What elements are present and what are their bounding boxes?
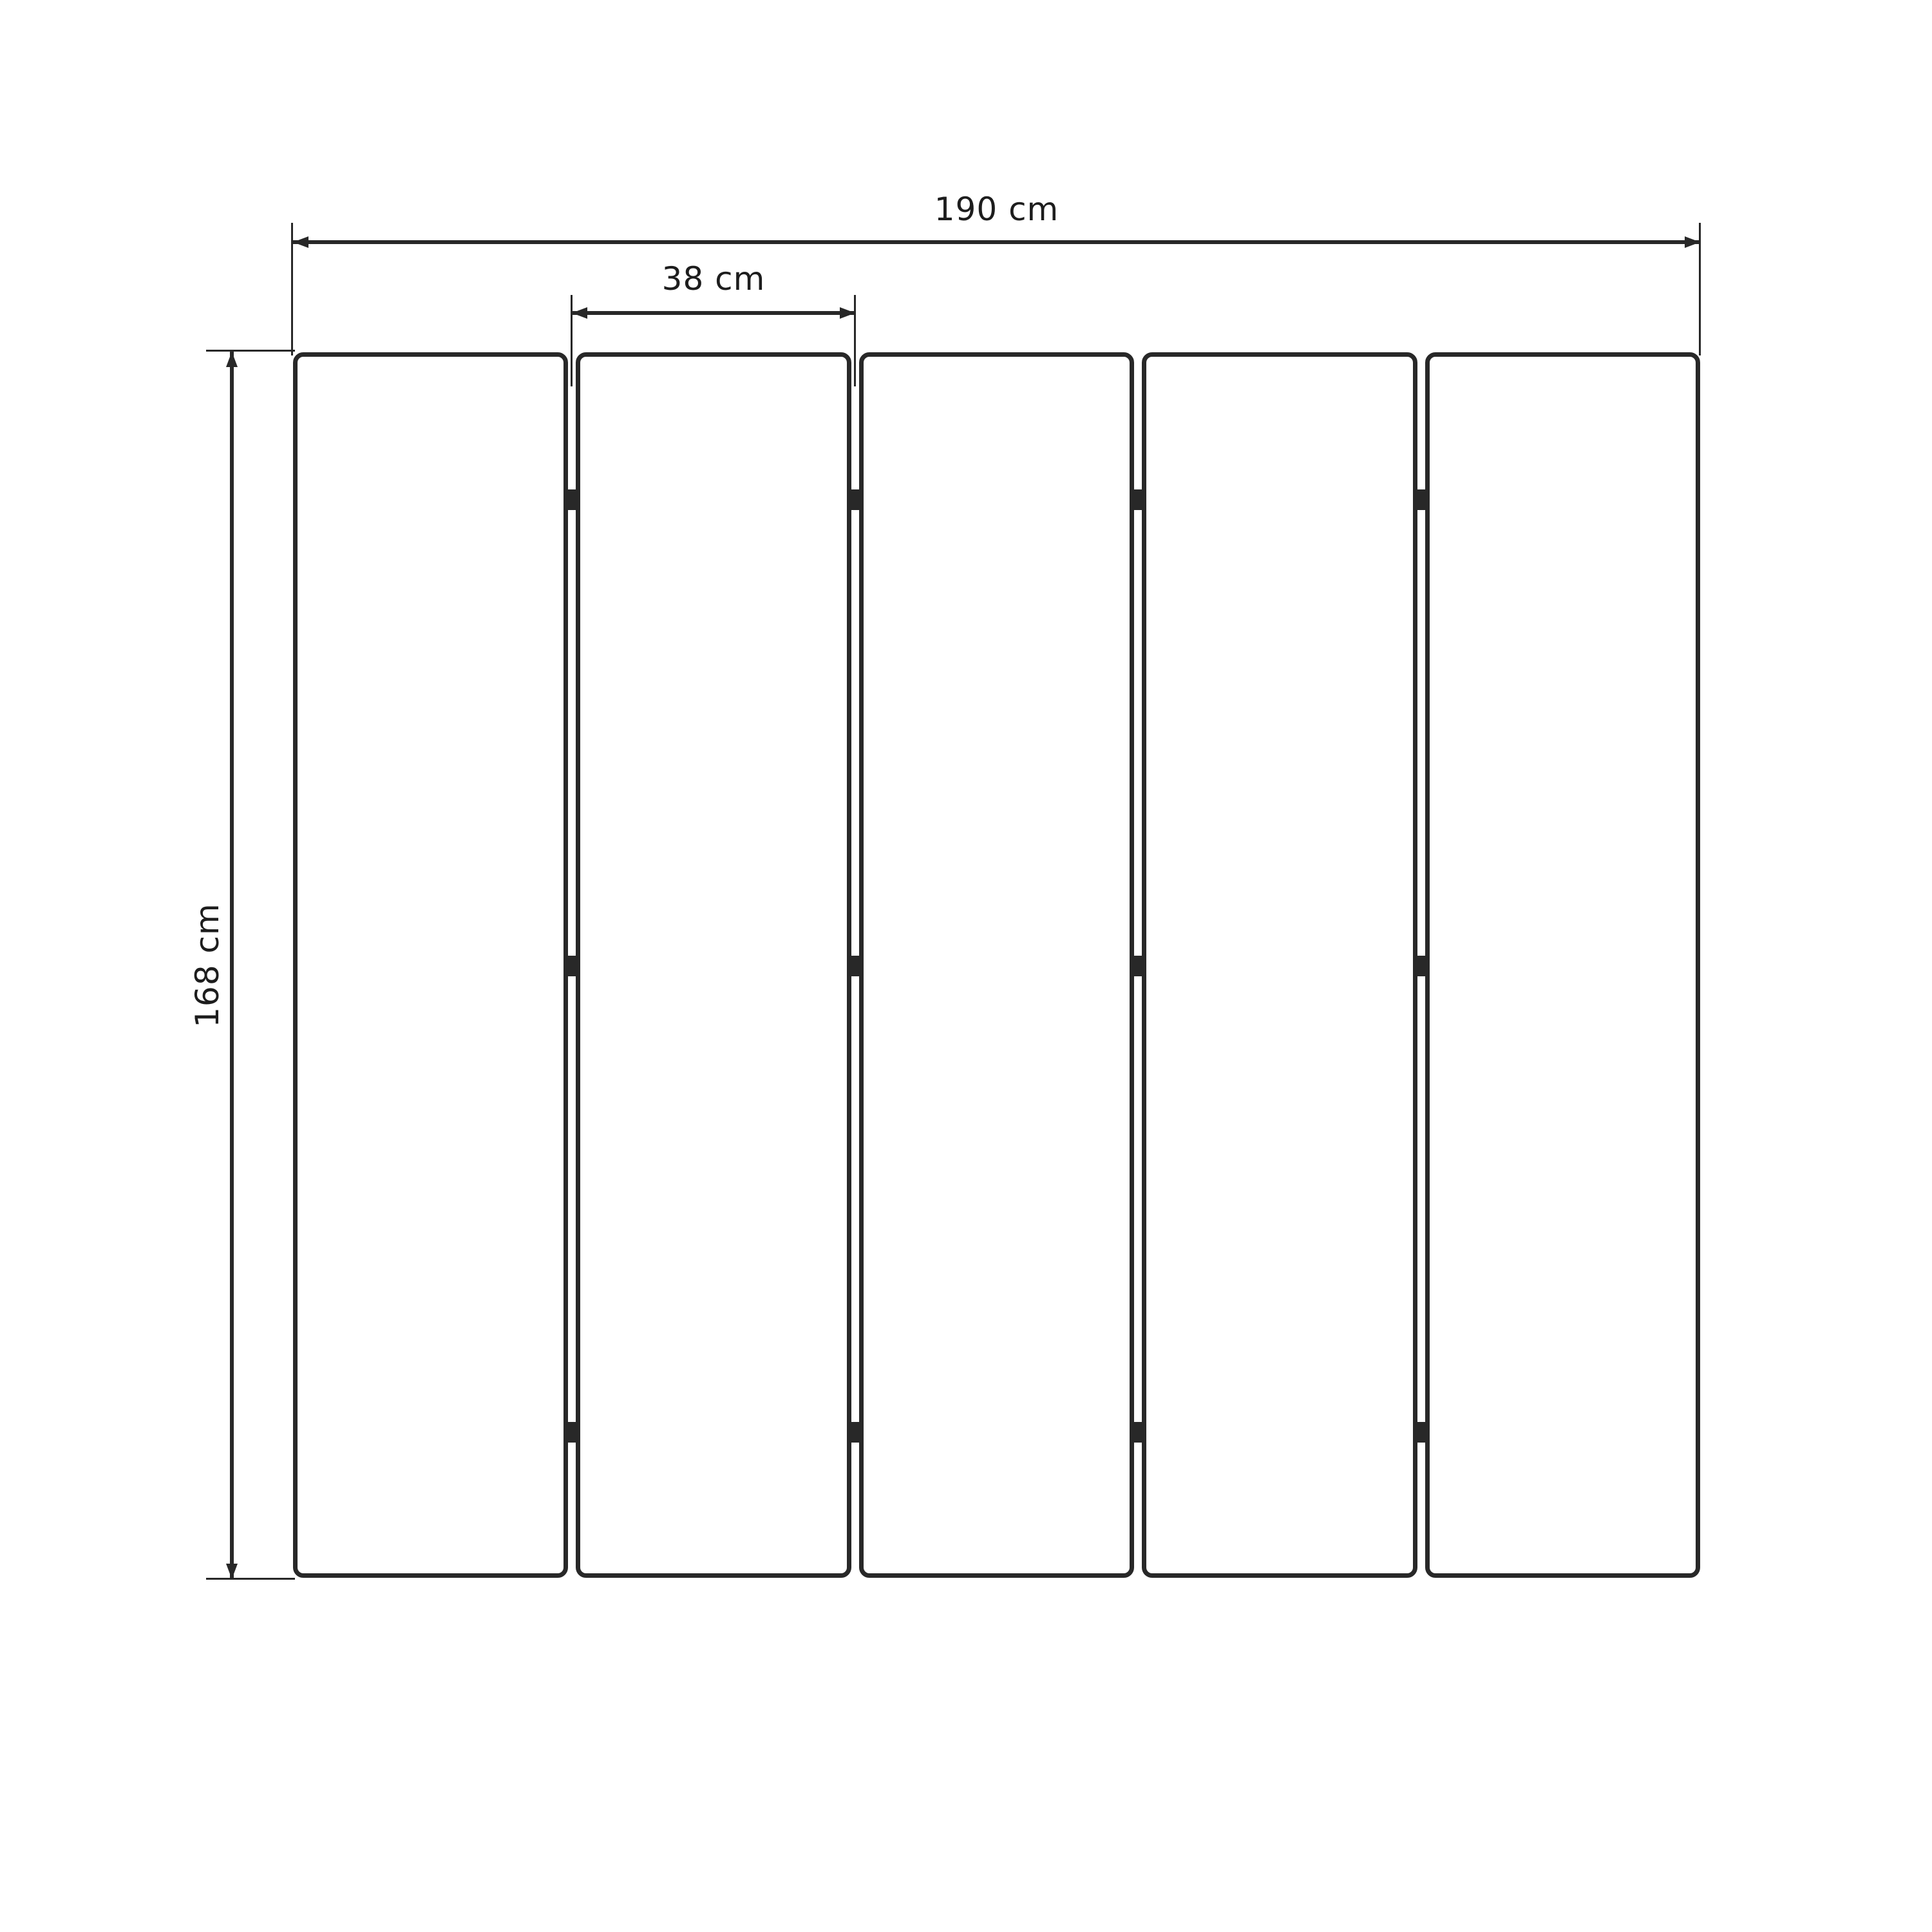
hinge	[850, 956, 860, 976]
arrowhead-down-icon	[226, 1564, 238, 1579]
dimension-line-total-width	[293, 240, 1700, 244]
panel	[293, 352, 568, 1578]
hinge	[1133, 1422, 1143, 1443]
panel	[576, 352, 851, 1578]
panel	[1425, 352, 1700, 1578]
hinge	[1416, 956, 1426, 976]
arrowhead-right-icon	[1685, 236, 1700, 248]
hinge	[567, 489, 577, 510]
extension-line-top	[206, 350, 295, 352]
arrowhead-right-icon	[840, 307, 855, 319]
hinge	[1133, 489, 1143, 510]
hinge	[567, 1422, 577, 1443]
arrowhead-left-icon	[293, 236, 308, 248]
hinge	[850, 489, 860, 510]
panel-width-label: 38 cm	[572, 261, 855, 296]
hinge	[567, 956, 577, 976]
panel	[1142, 352, 1417, 1578]
hinge	[850, 1422, 860, 1443]
arrowhead-left-icon	[572, 307, 587, 319]
height-label: 168 cm	[190, 903, 225, 1028]
folding-screen-technical-drawing: 190 cm 38 cm 168 cm	[0, 0, 1932, 1932]
total-width-label: 190 cm	[293, 192, 1700, 227]
hinge	[1416, 1422, 1426, 1443]
hinge	[1416, 489, 1426, 510]
dimension-line-panel-width	[572, 311, 855, 315]
arrowhead-up-icon	[226, 352, 238, 367]
dimension-line-height	[230, 352, 234, 1579]
panel-row	[293, 352, 1700, 1578]
extension-line-bottom	[206, 1578, 295, 1580]
panel	[859, 352, 1134, 1578]
hinge	[1133, 956, 1143, 976]
